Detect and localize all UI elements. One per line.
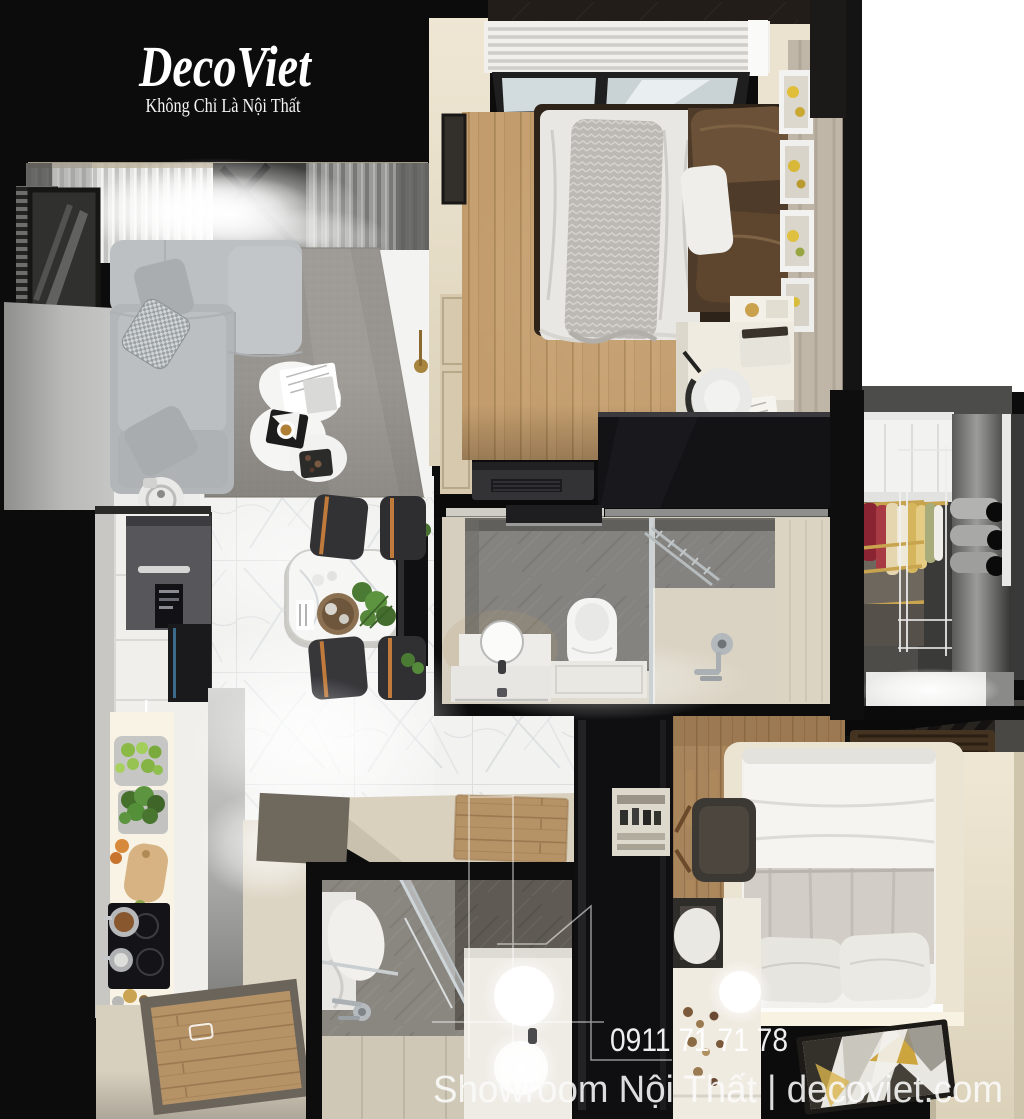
svg-text:Showroom Nội Thất | decoviet.c: Showroom Nội Thất | decoviet.com bbox=[433, 1069, 1003, 1111]
svg-text:0911 71 71 78: 0911 71 71 78 bbox=[610, 1022, 788, 1058]
svg-text:DecoViet: DecoViet bbox=[138, 34, 312, 99]
svg-text:Không Chỉ Là Nội Thất: Không Chỉ Là Nội Thất bbox=[146, 95, 301, 117]
